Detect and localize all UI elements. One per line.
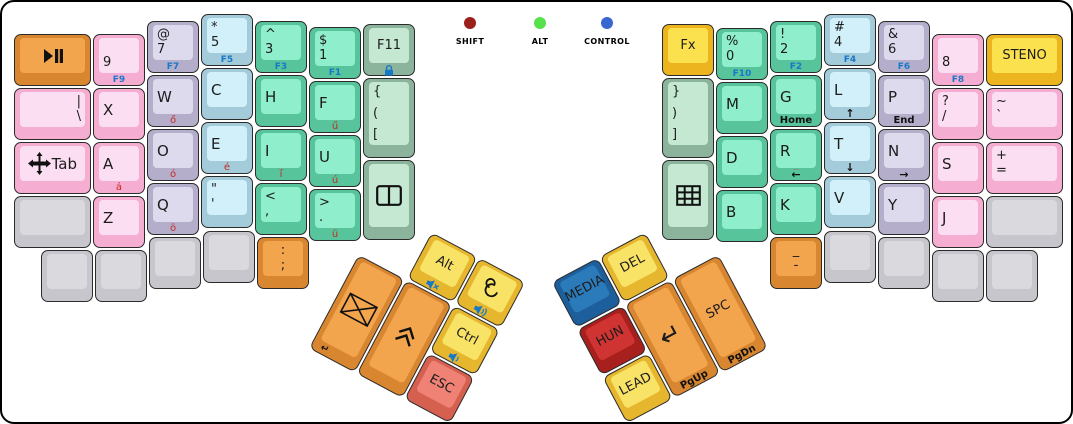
front-legend-text: ←	[791, 170, 800, 180]
key-u-cap: U	[315, 139, 355, 174]
control-indicator-dot	[601, 17, 613, 29]
key-e-cap: E	[207, 126, 247, 161]
key-7[interactable]: @7F7	[147, 21, 199, 73]
key-legend: HUN	[594, 324, 626, 350]
front-legend-text: Home	[780, 116, 812, 126]
key-u-front-legend: ú	[310, 175, 360, 187]
key-legend: >	[319, 196, 330, 210]
front-legend-text: F9	[113, 75, 125, 85]
key-c-cap: C	[207, 72, 247, 107]
control-indicator-label: CONTROL	[584, 37, 630, 46]
key-play-pause-cap	[20, 38, 85, 73]
key-g[interactable]: GHome	[770, 75, 822, 127]
key-o-cap: O	[153, 133, 193, 168]
key-legend: V	[834, 191, 844, 205]
key-blank-l4-cap	[209, 235, 249, 270]
key-period-front-legend: ü	[310, 229, 360, 241]
key-legend: (	[373, 107, 378, 121]
key-plus[interactable]: +=	[986, 142, 1063, 194]
key-legend: W	[157, 90, 172, 104]
key-9-cap: 9	[99, 38, 139, 73]
key-legend: MEDIA	[563, 273, 607, 305]
key-minus-cap: _-	[776, 241, 816, 276]
key-legend: |	[77, 95, 81, 109]
front-legend-text: F4	[844, 55, 856, 65]
front-legend-text: F10	[733, 69, 752, 79]
key-2[interactable]: !2F2	[770, 21, 822, 73]
front-legend-text: ö	[170, 224, 176, 234]
key-legend: M	[726, 97, 739, 111]
key-legend: `	[996, 110, 1003, 124]
key-comma[interactable]: <,	[255, 183, 307, 235]
keypad-icon	[676, 185, 701, 206]
key-legend: E	[211, 137, 220, 151]
key-legend: .	[319, 211, 323, 225]
key-q-cap: Q	[153, 187, 193, 222]
key-blank-l2-cap	[101, 254, 141, 289]
key-legend: :	[281, 244, 285, 258]
key-legend: H	[265, 90, 276, 104]
front-legend-text: F5	[221, 55, 233, 65]
key-legend	[103, 41, 107, 55]
front-legend-text: F1	[329, 68, 341, 78]
key-a-front-legend: á	[94, 182, 144, 194]
key-v[interactable]: V	[824, 176, 876, 228]
key-legend: Tab	[52, 157, 77, 171]
key-9[interactable]: 9F9	[93, 34, 145, 86]
key-legend: P	[888, 90, 897, 104]
key-0[interactable]: %0F10	[716, 28, 768, 80]
key-question-cap: ?/	[938, 92, 978, 127]
key-legend: 6	[888, 43, 896, 57]
front-legend-text: á	[116, 183, 122, 193]
shift-indicator-label: SHIFT	[456, 37, 484, 46]
key-m[interactable]: M	[716, 82, 768, 134]
key-3[interactable]: ^3F3	[255, 21, 307, 73]
key-legend: "	[211, 183, 217, 197]
front-legend-text: End	[893, 116, 914, 126]
key-4-front-legend: F4	[825, 54, 875, 66]
key-legend: <	[265, 190, 276, 204]
key-j-cap: J	[938, 200, 978, 235]
key-colon-cap: :;	[263, 241, 303, 276]
key-q-front-legend: ö	[148, 223, 198, 235]
key-steno[interactable]: STENO	[986, 34, 1063, 86]
key-blank-r4[interactable]	[986, 250, 1038, 302]
key-m-cap: M	[722, 86, 762, 121]
key-legend: \	[77, 110, 81, 124]
key-q[interactable]: Qö	[147, 183, 199, 235]
key-l[interactable]: L↑	[824, 68, 876, 120]
key-s-cap: S	[938, 146, 978, 181]
key-blank-l0-cap	[20, 200, 85, 235]
key-c[interactable]: C	[201, 68, 253, 120]
key-h-cap: H	[261, 79, 301, 114]
key-legend: [	[373, 128, 378, 142]
key-t-cap: T	[830, 126, 870, 161]
key-blank-r2-cap	[884, 241, 924, 276]
front-legend-text: F8	[952, 75, 964, 85]
key-legend: U	[319, 150, 330, 164]
key-f[interactable]: Fű	[309, 81, 361, 133]
alt-indicator-dot	[534, 17, 546, 29]
key-0-front-legend: F10	[717, 68, 767, 80]
key-8-cap: 8	[938, 38, 978, 73]
key-5[interactable]: *5F5	[201, 14, 253, 66]
key-legend: Y	[888, 198, 897, 212]
key-1-front-legend: F1	[310, 67, 360, 79]
key-pipe-backslash[interactable]: |\	[14, 88, 91, 140]
key-question[interactable]: ?/	[932, 88, 984, 140]
key-legend: ?	[942, 95, 949, 109]
key-blank-l3[interactable]	[149, 237, 201, 289]
key-blank-l2[interactable]	[95, 250, 147, 302]
key-legend: R	[780, 144, 790, 158]
key-legend: 5	[211, 36, 219, 50]
key-i-front-legend: í	[256, 169, 306, 181]
key-legend: $	[319, 34, 327, 48]
key-2-front-legend: F2	[771, 61, 821, 73]
key-media-cap: MEDIA	[559, 264, 611, 314]
key-r-cap: R_	[776, 133, 816, 168]
key-legend: }	[672, 85, 680, 99]
key-z-cap: Z	[99, 200, 139, 235]
key-8[interactable]: 8F8	[932, 34, 984, 86]
debian-icon	[479, 275, 506, 302]
move-icon	[28, 152, 51, 175]
front-legend-text: ű	[332, 122, 338, 132]
key-legend: ^	[265, 28, 276, 42]
front-legend-text: ó	[170, 170, 176, 180]
key-x[interactable]: X	[93, 88, 145, 140]
key-r-front-legend: ←	[771, 169, 821, 181]
key-legend: +	[996, 149, 1007, 163]
key-n-front-legend: →	[879, 169, 929, 181]
key-sub-legend: _	[776, 159, 816, 168]
key-legend: J	[942, 211, 946, 225]
key-5-front-legend: F5	[202, 54, 252, 66]
key-t[interactable]: T↓	[824, 122, 876, 174]
key-legend: 3	[265, 43, 273, 57]
key-blank-r3[interactable]	[932, 250, 984, 302]
key-0-cap: %0	[722, 32, 762, 67]
key-legend: STENO	[1002, 49, 1046, 63]
key-legend: {	[373, 85, 381, 99]
key-legend: 4	[834, 36, 842, 50]
key-legend: I	[265, 144, 269, 158]
key-legend: B	[726, 205, 736, 219]
key-blank-r1[interactable]	[824, 231, 876, 283]
key-comma-cap: <,	[261, 187, 301, 222]
key-legend: /	[942, 110, 946, 124]
front-legend-text: í	[280, 170, 283, 180]
key-blank-r2[interactable]	[878, 237, 930, 289]
front-legend-text: ↑	[845, 109, 854, 119]
key-6-front-legend: F6	[879, 61, 929, 73]
key-e[interactable]: Eé	[201, 122, 253, 174]
key-h[interactable]: H	[255, 75, 307, 127]
key-tilde-cap: ~`	[992, 92, 1057, 127]
keyboard-layout-frame: 9F9@7F7*5F5^3F3$1F1F11|\XWőCHFű{([TabAáO…	[0, 0, 1073, 424]
key-d[interactable]: D	[716, 136, 768, 188]
key-r[interactable]: R_←	[770, 129, 822, 181]
key-y[interactable]: Y	[878, 183, 930, 235]
key-p-front-legend: End	[879, 115, 929, 127]
key-6[interactable]: &6F6	[878, 21, 930, 73]
key-blank-r0-cap	[992, 200, 1057, 235]
key-blank-r1-cap	[830, 235, 870, 270]
key-legend: ↵	[655, 318, 686, 351]
key-7-cap: @7	[153, 25, 193, 60]
key-legend: F11	[377, 39, 401, 53]
key-fx-cap: Fx	[668, 28, 708, 63]
key-legend: G	[780, 90, 792, 104]
key-z[interactable]: Z	[93, 196, 145, 248]
key-w-cap: W	[153, 79, 193, 114]
key-legend: C	[211, 83, 221, 97]
key-legend	[942, 41, 946, 55]
key-b[interactable]: B	[716, 190, 768, 242]
key-w-front-legend: ő	[148, 115, 198, 127]
key-legend: A	[103, 157, 113, 171]
alt-indicator-label: ALT	[532, 37, 549, 46]
key-pipe-backslash-cap: |\	[20, 92, 85, 127]
lock-icon	[384, 65, 394, 76]
key-p-cap: P	[884, 79, 924, 114]
key-tilde[interactable]: ~`	[986, 88, 1063, 140]
key-legend: 9	[103, 56, 111, 70]
key-legend: ~	[996, 95, 1007, 109]
key-fx[interactable]: Fx	[662, 24, 714, 76]
key-v-cap: V	[830, 180, 870, 215]
shift-indicator-dot	[464, 17, 476, 29]
key-legend: @	[157, 28, 170, 42]
front-legend-text: →	[899, 170, 908, 180]
key-blank-r0[interactable]	[986, 196, 1063, 248]
front-legend-text: ú	[332, 176, 338, 186]
front-legend-text: ü	[332, 230, 338, 240]
key-legend: ,	[265, 205, 269, 219]
key-legend: K	[780, 198, 790, 212]
key-2-cap: !2	[776, 25, 816, 60]
front-legend-text: é	[224, 163, 230, 173]
key-legend: O	[157, 144, 169, 158]
key-f-cap: F	[315, 85, 355, 120]
key-8-front-legend: F8	[933, 74, 983, 86]
key-legend: _	[793, 244, 800, 258]
key-legend: 7	[157, 43, 165, 57]
key-blank-l0[interactable]	[14, 196, 91, 248]
key-4-cap: #4	[830, 18, 870, 53]
key-i-cap: I_	[261, 133, 301, 168]
key-9-front-legend: F9	[94, 74, 144, 86]
key-4[interactable]: #4F4	[824, 14, 876, 66]
key-e-front-legend: é	[202, 162, 252, 174]
key-legend: Alt	[433, 253, 455, 274]
key-legend: T	[834, 137, 843, 151]
key-legend: 8	[942, 56, 950, 70]
key-legend: X	[103, 103, 113, 117]
key-legend: )	[672, 107, 677, 121]
key-quote[interactable]: "'	[201, 176, 253, 228]
key-brace-open[interactable]: {([	[363, 78, 415, 158]
key-legend: '	[211, 198, 215, 212]
key-legend: D	[726, 151, 738, 165]
key-period-cap: >.	[315, 193, 355, 228]
key-legend: !	[780, 28, 785, 42]
key-legend: 2	[780, 43, 788, 57]
key-legend: &	[888, 28, 898, 42]
key-sub-legend: _	[261, 159, 301, 168]
key-1[interactable]: $1F1	[309, 27, 361, 79]
key-del-cap: DEL	[607, 239, 659, 289]
key-legend: #	[834, 21, 845, 35]
key-legend: Q	[157, 198, 169, 212]
key-play-pause[interactable]	[14, 34, 91, 86]
key-colon[interactable]: :;	[257, 237, 309, 289]
key-brace-close-cap: })]	[668, 82, 708, 145]
key-a[interactable]: Aá	[93, 142, 145, 194]
key-blank-l4[interactable]	[203, 231, 255, 283]
key-w[interactable]: Wő	[147, 75, 199, 127]
key-blank-l1[interactable]	[41, 250, 93, 302]
key-g-front-legend: Home	[771, 115, 821, 127]
envelope-icon	[339, 292, 378, 327]
key-legend: 0	[726, 50, 734, 64]
key-b-cap: B	[722, 194, 762, 229]
key-legend: =	[996, 164, 1007, 178]
key-legend: Ctrl	[453, 325, 480, 348]
key-t-front-legend: ↓	[825, 162, 875, 174]
key-f11-front-legend	[364, 64, 414, 76]
key-legend: S	[942, 157, 952, 171]
key-period[interactable]: >.ü	[309, 189, 361, 241]
key-brace-close[interactable]: })]	[662, 78, 714, 158]
key-6-cap: &6	[884, 25, 924, 60]
key-legend: L	[834, 83, 842, 97]
key-blank-r4-cap	[992, 254, 1032, 289]
key-legend: SPC	[704, 298, 733, 322]
key-legend: F	[319, 96, 328, 110]
window-split-icon	[376, 185, 402, 206]
key-1-cap: $1	[315, 31, 355, 66]
front-legend-text: F7	[167, 62, 179, 72]
key-s[interactable]: S	[932, 142, 984, 194]
key-3-cap: ^3	[261, 25, 301, 60]
key-d-cap: D	[722, 140, 762, 175]
key-f-front-legend: ű	[310, 121, 360, 133]
key-minus[interactable]: _-	[770, 237, 822, 289]
key-k[interactable]: K	[770, 183, 822, 235]
key-legend: 1	[319, 49, 327, 63]
key-f11[interactable]: F11	[363, 24, 415, 76]
key-x-cap: X	[99, 92, 139, 127]
front-legend-text: ↵	[318, 343, 330, 356]
key-i[interactable]: I_í	[255, 129, 307, 181]
key-7-front-legend: F7	[148, 61, 198, 73]
front-legend-text: F3	[275, 62, 287, 72]
chevrons-up-icon	[391, 321, 422, 350]
key-n[interactable]: N→	[878, 129, 930, 181]
front-legend-text: F6	[898, 62, 910, 72]
key-p[interactable]: PEnd	[878, 75, 930, 127]
key-legend: ESC	[427, 372, 456, 396]
key-a-cap: A	[99, 146, 139, 181]
front-legend-text: ↓	[845, 163, 854, 173]
key-u[interactable]: Uú	[309, 135, 361, 187]
key-legend: N	[888, 144, 899, 158]
key-legend: Fx	[680, 39, 695, 53]
key-o-front-legend: ó	[148, 169, 198, 181]
key-blank-l3-cap	[155, 241, 195, 276]
key-legend: DEL	[618, 251, 647, 275]
key-5-cap: *5	[207, 18, 247, 53]
key-f11-cap: F11	[369, 28, 409, 63]
front-legend-text: F2	[790, 62, 802, 72]
key-plus-cap: +=	[992, 146, 1057, 181]
key-3-front-legend: F3	[256, 61, 306, 73]
key-steno-cap: STENO	[992, 38, 1057, 73]
key-legend: LEAD	[617, 370, 654, 398]
key-blank-l1-cap	[47, 254, 87, 289]
key-legend: ;	[281, 259, 285, 273]
key-l-front-legend: ↑	[825, 108, 875, 120]
key-k-cap: K	[776, 187, 816, 222]
key-blank-r3-cap	[938, 254, 978, 289]
key-j[interactable]: J	[932, 196, 984, 248]
key-brace-open-cap: {([	[369, 82, 409, 145]
key-y-cap: Y	[884, 187, 924, 222]
play-pause-icon	[42, 48, 64, 64]
key-n-cap: N	[884, 133, 924, 168]
key-tab-cap: Tab	[20, 146, 85, 181]
key-legend: ]	[672, 128, 677, 142]
key-tab[interactable]: Tab	[14, 142, 91, 194]
front-legend-text: ő	[170, 116, 176, 126]
key-legend: %	[726, 35, 738, 49]
key-legend: -	[794, 259, 799, 273]
key-quote-cap: "'	[207, 180, 247, 215]
key-g-cap: G	[776, 79, 816, 114]
key-l-cap: L	[830, 72, 870, 107]
key-o[interactable]: Oó	[147, 129, 199, 181]
key-legend: *	[211, 21, 218, 35]
key-legend: Z	[103, 211, 113, 225]
